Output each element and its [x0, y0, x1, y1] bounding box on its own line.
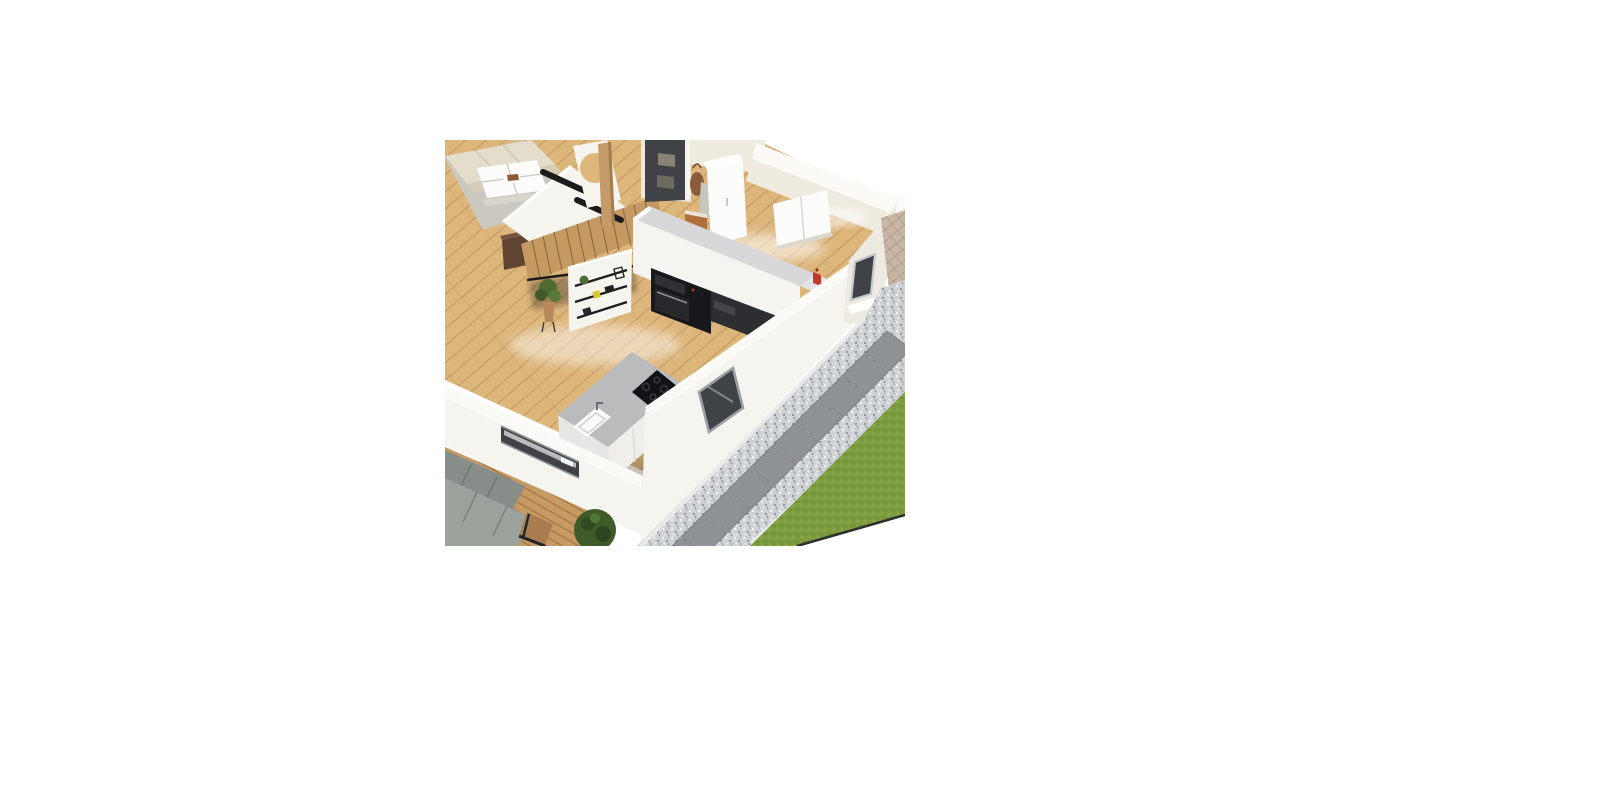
- white-mug: [615, 296, 620, 301]
- entry-door: [645, 140, 690, 202]
- plant-pot: [543, 302, 555, 322]
- floorplan-viewport[interactable]: [445, 140, 905, 546]
- door-frame: [685, 140, 690, 200]
- floorplan-render: [445, 140, 905, 546]
- page-canvas: [0, 0, 1600, 800]
- door-panel-upper: [658, 153, 675, 167]
- floor-light-glow: [510, 325, 680, 365]
- door-panel-lower: [657, 175, 674, 189]
- shelf-plant: [580, 276, 589, 285]
- tray-book: [507, 174, 519, 181]
- door-slab: [645, 140, 685, 202]
- appliance-red-light: [692, 289, 695, 292]
